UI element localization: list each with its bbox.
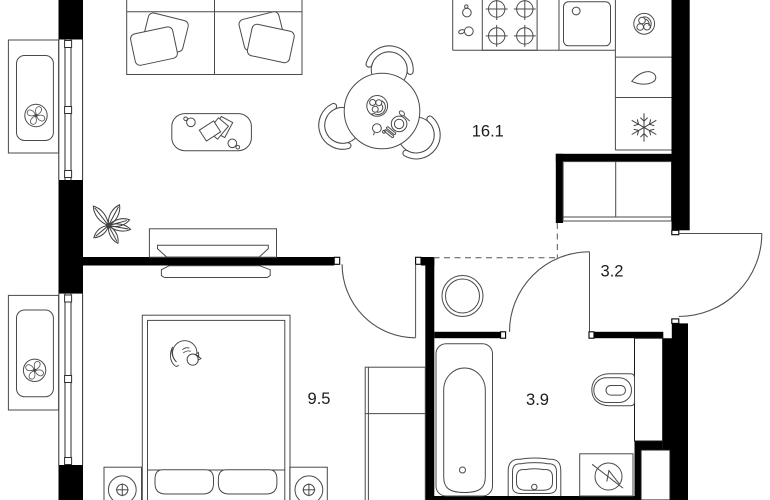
svg-text:16.1: 16.1 [472, 123, 504, 141]
svg-text:3.9: 3.9 [526, 391, 549, 409]
svg-text:9.5: 9.5 [308, 390, 331, 408]
svg-text:3.2: 3.2 [601, 263, 624, 281]
